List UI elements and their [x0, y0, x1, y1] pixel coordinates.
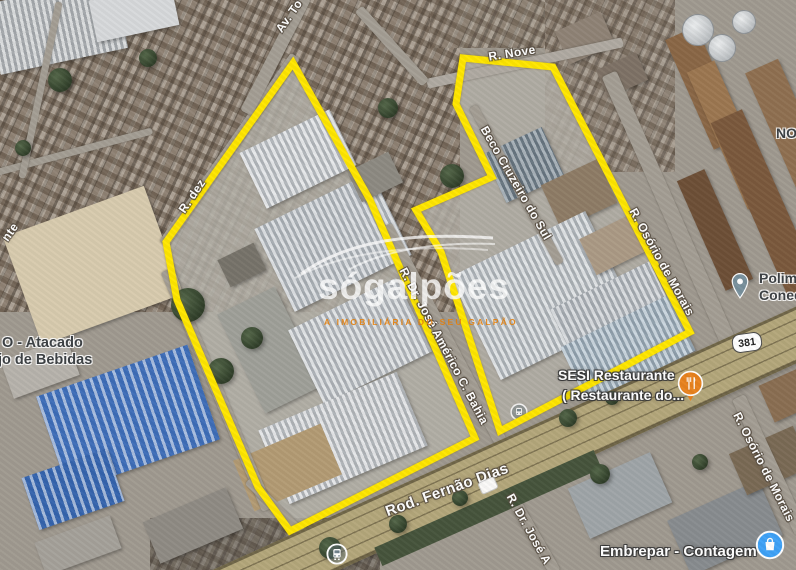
poi-label-sesi-line1[interactable]: SESI Restaurante — [558, 367, 675, 383]
poi-label-polimetal-line2[interactable]: Conec — [759, 287, 796, 303]
tree — [378, 98, 398, 118]
bus-stop-icon[interactable] — [326, 543, 348, 570]
poi-label-atacado-line2[interactable]: jo de Bebidas — [0, 352, 92, 368]
route-shield-label: 381 — [737, 335, 756, 349]
tree — [139, 49, 157, 67]
satellite-map[interactable]: R. Nove Av. To R. dez nte Beco Cruzeiro … — [0, 0, 796, 570]
poi-embrepar-pin[interactable] — [755, 530, 785, 565]
tree — [692, 454, 708, 470]
tree — [559, 409, 577, 427]
bus-stop-icon[interactable] — [510, 403, 528, 426]
poi-polimetal[interactable] — [729, 272, 751, 305]
tree — [208, 358, 234, 384]
bus-icon — [326, 543, 348, 565]
road-label-jose-americo-south: R. Dr. José A — [504, 491, 554, 567]
map-pin-icon — [729, 272, 751, 300]
tree — [15, 140, 31, 156]
poi-sesi-pin[interactable] — [677, 370, 704, 407]
tree — [171, 288, 205, 322]
poi-label-atacado-line1[interactable]: O - Atacado — [2, 335, 83, 351]
storage-tank — [732, 10, 756, 34]
tree — [48, 68, 72, 92]
tree — [590, 464, 610, 484]
poi-label-polimetal-line1[interactable]: Polime — [759, 270, 796, 286]
poi-label-embrepar[interactable]: Embrepar - Contagem — [600, 543, 757, 560]
tree — [440, 164, 464, 188]
shopping-bag-icon — [755, 530, 785, 560]
storage-tank — [708, 34, 736, 62]
restaurant-icon — [677, 370, 704, 402]
poi-label-sesi-line2[interactable]: ( Restaurante do... — [562, 387, 684, 403]
tree — [241, 327, 263, 349]
poi-label-truncated-no: NO — [776, 125, 796, 141]
bus-icon — [510, 403, 528, 421]
